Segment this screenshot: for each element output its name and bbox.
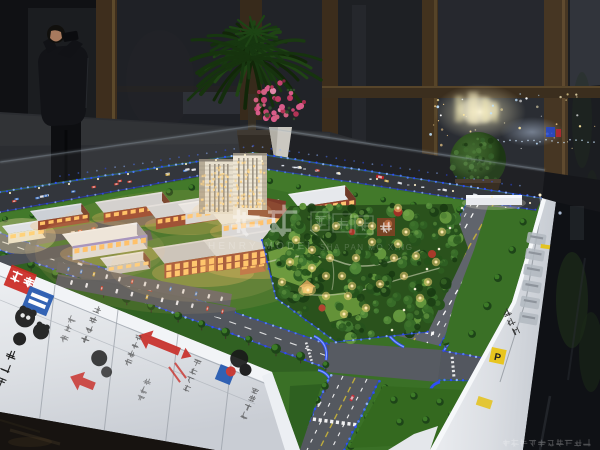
svg-text:SHA PAN MO XING: SHA PAN MO XING: [320, 243, 413, 252]
svg-text:HENRY MODEL: HENRY MODEL: [208, 241, 316, 252]
